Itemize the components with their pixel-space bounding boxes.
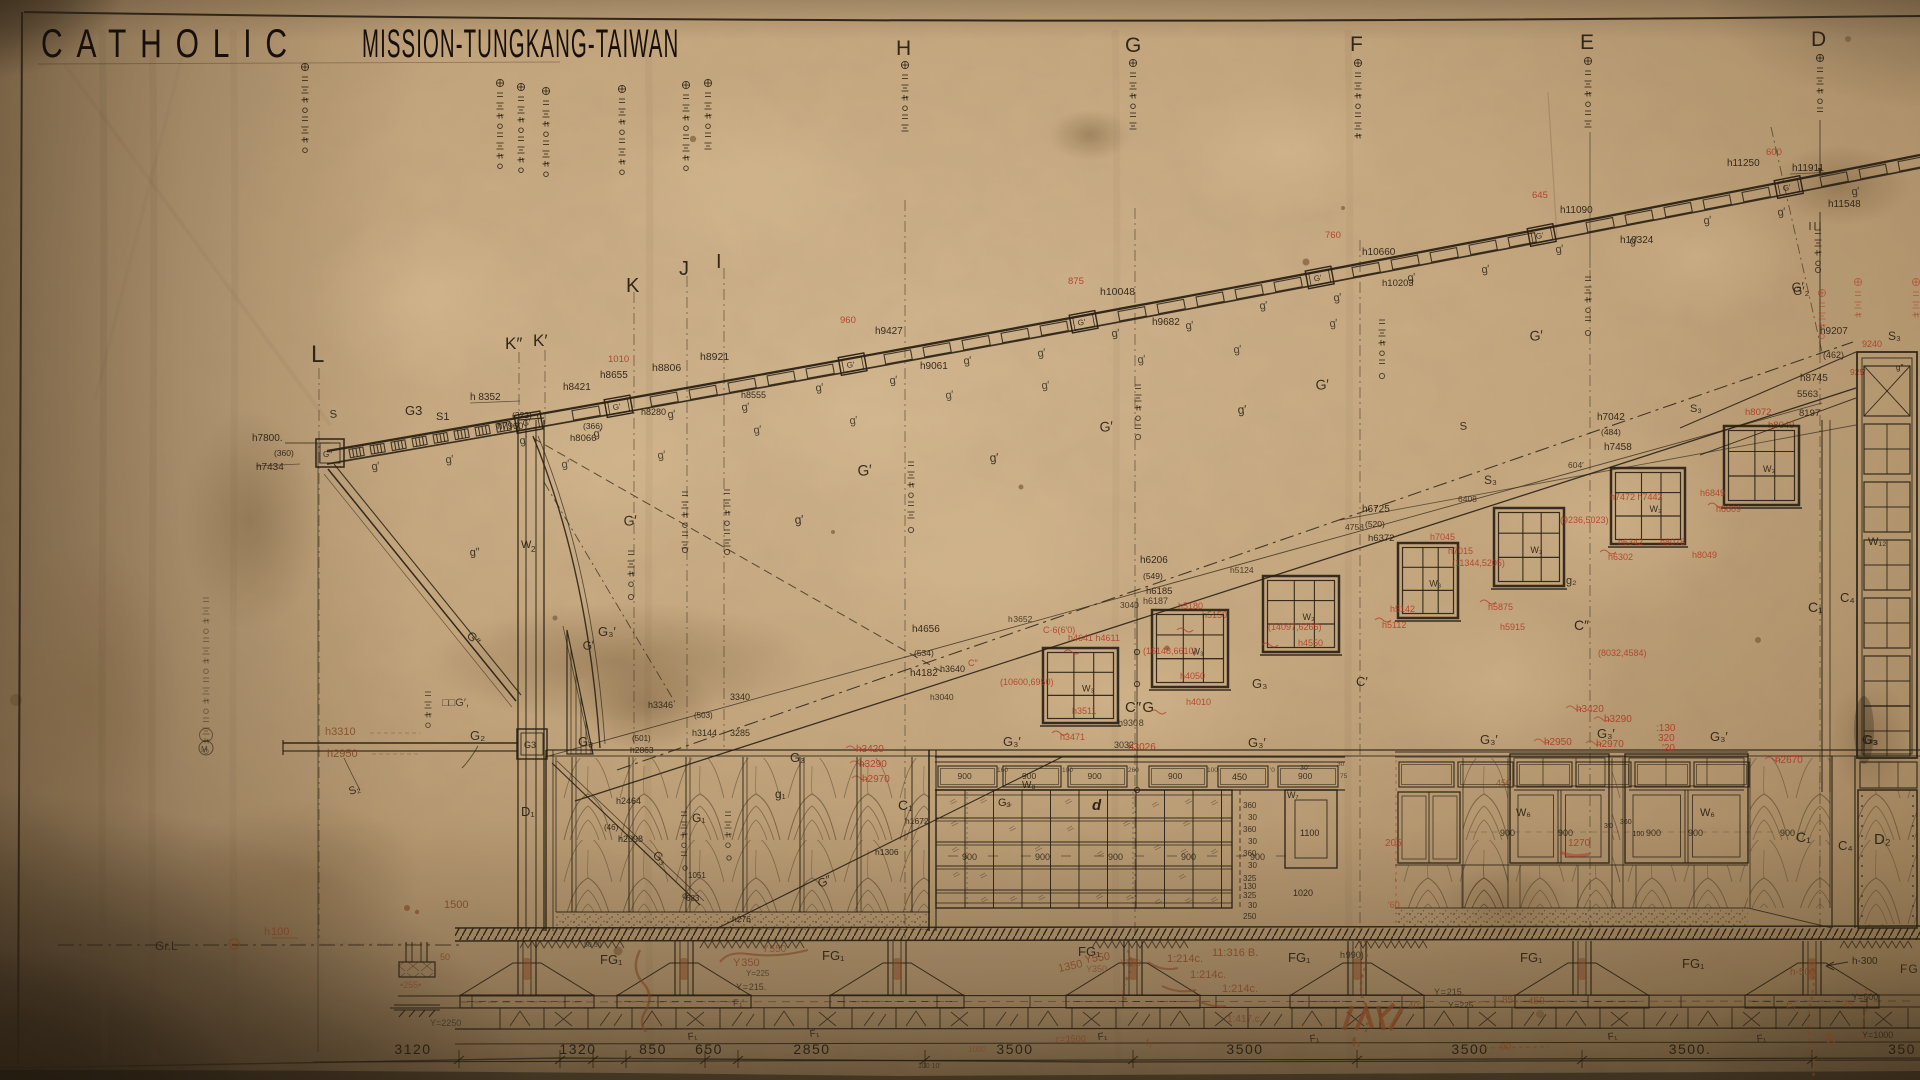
svg-text:G′: G′: [857, 462, 873, 480]
svg-text:h7045: h7045: [1430, 532, 1455, 542]
svg-text:g′: g′: [753, 424, 763, 437]
svg-text:11:316 B.: 11:316 B.: [1212, 947, 1258, 959]
svg-text:′60: ′60: [1388, 900, 1400, 910]
svg-text:3500.: 3500.: [1669, 1041, 1712, 1057]
svg-text:C′′: C′′: [968, 658, 978, 668]
svg-text:875: 875: [1068, 276, 1084, 287]
svg-text:Y=1000: Y=1000: [1862, 1030, 1893, 1040]
svg-text:C″: C″: [1574, 617, 1589, 633]
svg-text:645: 645: [1532, 190, 1548, 201]
svg-text:h6372: h6372: [1368, 533, 1394, 544]
svg-text:h8806: h8806: [652, 362, 681, 374]
svg-text:g′: g′: [741, 401, 751, 414]
svg-text:h930 8: h930 8: [1118, 718, 1144, 728]
svg-text:h3511: h3511: [1072, 706, 1096, 716]
svg-text:g′: g′: [1333, 292, 1343, 305]
svg-text:50 50: 50 50: [584, 942, 602, 949]
svg-text:g′: g′: [519, 434, 529, 447]
svg-text:160: 160: [997, 767, 1008, 774]
svg-text:E: E: [1580, 31, 1594, 54]
svg-text:S₃: S₃: [1690, 403, 1702, 415]
svg-text:g″: g″: [1896, 363, 1903, 372]
svg-text:900: 900: [962, 852, 977, 862]
svg-text:(534): (534): [914, 648, 934, 658]
svg-text:900: 900: [1646, 828, 1661, 838]
svg-text:g′: g′: [667, 408, 677, 421]
svg-text:G′: G′: [1315, 376, 1330, 393]
svg-text:h4010: h4010: [1186, 697, 1211, 707]
svg-text:h7042: h7042: [1597, 412, 1625, 423]
svg-text:D₁: D₁: [521, 804, 535, 819]
svg-text:1010: 1010: [608, 354, 629, 365]
svg-text:g′: g′: [849, 414, 859, 427]
svg-text:g′: g′: [815, 382, 825, 395]
svg-text:(462): (462): [1823, 350, 1844, 360]
svg-text:75: 75: [1843, 999, 1853, 1009]
svg-text:h8421: h8421: [563, 382, 591, 393]
svg-text:M: M: [201, 745, 208, 754]
svg-text:(501): (501): [632, 734, 651, 743]
svg-text:900: 900: [1088, 771, 1102, 781]
svg-text:G₃: G₃: [1864, 733, 1878, 747]
svg-text:g₁: g₁: [775, 787, 786, 801]
svg-text:g′: g′: [1703, 214, 1713, 227]
svg-text:350: 350: [1888, 1041, 1916, 1057]
svg-text:(9236,5023): (9236,5023): [1560, 515, 1609, 525]
svg-text:(549): (549): [1143, 571, 1163, 581]
svg-text:C₄: C₄: [1840, 590, 1855, 605]
svg-text:g′: g′: [1137, 353, 1147, 366]
svg-text:900: 900: [1181, 852, 1196, 862]
svg-text:Y =225: Y =225: [1448, 1000, 1474, 1010]
svg-text:(8032,4584): (8032,4584): [1598, 648, 1647, 658]
svg-text:FG₁: FG₁: [600, 952, 623, 967]
svg-text:100 10′: 100 10′: [918, 1063, 941, 1070]
svg-text:30: 30: [1248, 901, 1257, 910]
svg-text:5563: 5563: [1797, 389, 1818, 400]
svg-text:h3144: h3144: [692, 728, 717, 738]
svg-text:CATHOLIC: CATHOLIC: [41, 22, 303, 66]
svg-text:100: 100: [1062, 767, 1073, 774]
svg-text:1:214c.: 1:214c.: [1190, 969, 1226, 981]
svg-text:FG₁: FG₁: [822, 948, 845, 963]
svg-text:h11548: h11548: [1828, 199, 1861, 210]
svg-text:h3040: h3040: [930, 692, 954, 702]
svg-text:g′: g′: [1481, 263, 1491, 276]
svg-text:g′: g′: [561, 458, 571, 471]
svg-text:W₃: W₃: [1763, 464, 1775, 474]
svg-text:g″: g″: [469, 546, 480, 559]
svg-text:h9061: h9061: [920, 361, 948, 372]
svg-text:h3310: h3310: [325, 726, 356, 738]
svg-text:Y=2250: Y=2250: [430, 1018, 461, 1028]
svg-text:h2863: h2863: [630, 745, 654, 755]
svg-text:G₃: G₃: [578, 734, 593, 749]
svg-text:F₁: F₁: [1756, 1033, 1767, 1045]
svg-text:g′: g′: [1629, 235, 1639, 248]
svg-text:W₆: W₆: [1700, 807, 1715, 819]
svg-text:Y550: Y550: [1120, 958, 1141, 968]
svg-text:h4641 h4611: h4641 h4611: [1068, 633, 1120, 643]
svg-text:FG₁: FG₁: [1288, 950, 1311, 965]
svg-text:G₃′: G₃′: [1710, 729, 1728, 744]
svg-text:360: 360: [1243, 825, 1257, 834]
svg-text:F₁: F₁: [1607, 1031, 1618, 1043]
svg-text:h10660: h10660: [1362, 247, 1396, 258]
svg-text:h 100: h 100: [264, 926, 289, 938]
svg-text:r = 1500: r = 1500: [1056, 1034, 1086, 1044]
svg-text:h 8352: h 8352: [470, 392, 501, 403]
svg-text:h8072: h8072: [1745, 407, 1771, 418]
svg-text:h2464: h2464: [616, 796, 641, 806]
svg-text:900: 900: [1035, 852, 1050, 862]
svg-text:g′: g′: [889, 374, 899, 387]
svg-text:6408: 6408: [1458, 494, 1477, 504]
svg-text:G₃′: G₃′: [598, 624, 616, 639]
svg-text:C₁: C₁: [1808, 599, 1823, 615]
svg-text:FG₁: FG₁: [1682, 956, 1705, 971]
svg-text:C₁: C₁: [1796, 829, 1811, 845]
svg-text:325: 325: [1243, 891, 1257, 900]
svg-text:□: □: [390, 704, 396, 715]
svg-text:G′₂: G′₂: [1793, 284, 1810, 298]
svg-text:(360): (360): [274, 448, 294, 458]
svg-text:900: 900: [1688, 828, 1703, 838]
svg-text:D: D: [1811, 28, 1826, 51]
svg-text:I: I: [716, 251, 722, 273]
svg-text:K′: K′: [533, 331, 548, 350]
svg-text:3500: 3500: [1451, 1041, 1488, 1057]
svg-text:1320: 1320: [559, 1041, 596, 1057]
svg-text:W₃: W₃: [1429, 579, 1441, 589]
svg-text:900: 900: [1298, 771, 1312, 781]
svg-text:h3026: h3026: [1128, 742, 1156, 753]
svg-text:F₁: F₁: [809, 1028, 820, 1040]
svg-text:760: 760: [1325, 230, 1341, 241]
svg-text:130: 130: [1243, 882, 1257, 891]
svg-text:G​3: G​3: [405, 403, 422, 418]
svg-text:h7960: h7960: [497, 421, 523, 432]
svg-text:8197: 8197: [1799, 408, 1820, 419]
svg-text:G′: G′: [1529, 327, 1544, 344]
svg-text:3340: 3340: [730, 692, 750, 702]
svg-text:g′: g′: [1037, 347, 1047, 360]
svg-text:g′: g′: [1851, 185, 1861, 198]
svg-text:L: L: [311, 341, 324, 368]
svg-text:h11090: h11090: [1560, 205, 1593, 216]
svg-text:h4182: h4182: [910, 668, 938, 679]
svg-text:(520): (520): [1365, 519, 1385, 529]
svg-text:g′: g′: [1777, 206, 1787, 219]
svg-text:h6849: h6849: [1700, 488, 1725, 498]
svg-text:3285: 3285: [730, 728, 750, 738]
svg-text:h4656: h4656: [912, 624, 940, 635]
svg-text:H: H: [896, 37, 911, 60]
svg-text:h-300: h-300: [1852, 956, 1878, 967]
svg-text:(484): (484): [1601, 427, 1621, 437]
svg-text:40′: 40′: [1408, 1001, 1421, 1012]
svg-text:650: 650: [695, 1041, 723, 1057]
svg-text:h2098: h2098: [618, 834, 643, 844]
svg-text:Gr.L: Gr.L: [155, 939, 178, 953]
svg-text:F₂: F₂: [1786, 1002, 1796, 1013]
svg-text:G₂: G₂: [470, 728, 485, 743]
svg-text:4758: 4758: [1345, 522, 1364, 532]
svg-text:900: 900: [1108, 852, 1123, 862]
svg-text:G′: G′: [1099, 418, 1114, 435]
svg-text:FG₁: FG₁: [1520, 950, 1543, 965]
svg-text:h8078: h8078: [1660, 537, 1685, 547]
svg-text:•255•: •255•: [400, 980, 421, 990]
svg-text:(503): (503): [694, 711, 713, 720]
svg-text:900: 900: [958, 771, 972, 781]
svg-text:G″: G″: [323, 450, 332, 459]
svg-text:30′: 30′: [1300, 765, 1310, 772]
svg-text:g′: g′: [1041, 379, 1051, 392]
svg-text:g′: g′: [945, 389, 955, 402]
svg-text:Y=900: Y=900: [1852, 992, 1878, 1002]
svg-text:h276: h276: [732, 914, 751, 924]
svg-text:h-500: h-500: [1790, 967, 1816, 978]
svg-text:G₃′: G₃′: [1480, 732, 1498, 747]
svg-text:g′: g′: [1111, 327, 1121, 340]
svg-text:F: F: [1350, 33, 1363, 56]
svg-text:h5915: h5915: [1500, 622, 1525, 632]
svg-text:3040: 3040: [1120, 600, 1139, 610]
svg-text:h1306: h1306: [875, 847, 899, 857]
svg-text:h7800.: h7800.: [252, 433, 283, 444]
svg-text:h8921: h8921: [700, 351, 729, 363]
svg-text:h3346: h3346: [648, 700, 673, 710]
svg-text:F ₁′: F ₁′: [733, 998, 744, 1008]
svg-text:W₁₂: W₁₂: [1868, 536, 1886, 548]
svg-text:□□G′,: □□G′,: [442, 697, 469, 709]
svg-text:K: K: [626, 275, 640, 297]
svg-text:C′: C′: [1356, 674, 1368, 689]
svg-text:Y350: Y350: [1086, 964, 1107, 974]
svg-text:C₄: C₄: [1838, 838, 1853, 853]
svg-text:(14097,6265): (14097,6265): [1268, 622, 1322, 632]
svg-text:h8280: h8280: [641, 407, 666, 417]
svg-text:(11344,5205): (11344,5205): [1452, 558, 1505, 568]
svg-text:900: 900: [1558, 828, 1573, 838]
svg-text:G₁: G₁: [692, 811, 705, 825]
svg-text:360: 360: [1243, 849, 1257, 858]
svg-text:683: 683: [686, 894, 700, 903]
svg-text:h 3652: h 3652: [1008, 614, 1033, 624]
svg-text:h6342: h6342: [1618, 537, 1643, 547]
svg-text:(16148,6610): (16148,6610): [1143, 646, 1197, 656]
svg-text:450: 450: [1232, 772, 1247, 782]
svg-text:MISSION-TUNGKANG-TAIWAN: MISSION-TUNGKANG-TAIWAN: [362, 21, 679, 66]
svg-text:G₃: G₃: [998, 797, 1011, 809]
svg-text:1270: 1270: [1568, 838, 1591, 849]
svg-text:g′: g′: [1233, 343, 1243, 356]
svg-text:g′: g′: [657, 449, 667, 462]
svg-text:600: 600: [1766, 147, 1782, 158]
svg-text:G: G: [1125, 34, 1141, 57]
svg-text:W₆: W₆: [1516, 807, 1531, 819]
svg-text:g′: g′: [593, 427, 603, 440]
svg-text:1:214c.: 1:214c.: [1222, 983, 1258, 995]
svg-text:h11250: h11250: [1727, 158, 1760, 169]
svg-text:h6206: h6206: [1140, 555, 1168, 566]
svg-text:604′: 604′: [1568, 460, 1584, 470]
svg-text:h3290: h3290: [1604, 714, 1632, 725]
svg-text:W₇: W₇: [1287, 790, 1299, 800]
svg-text:Y = 215.: Y = 215.: [736, 982, 766, 992]
svg-text:1:417.c.: 1:417.c.: [1227, 1014, 1263, 1025]
svg-text:G₃′: G₃′: [1003, 734, 1021, 749]
svg-text:h7458: h7458: [1604, 442, 1632, 453]
svg-text:1000: 1000: [968, 1045, 986, 1054]
svg-text:30: 30: [1248, 837, 1257, 846]
svg-text:h1672: h1672: [905, 816, 929, 826]
svg-text:d: d: [1092, 797, 1102, 814]
svg-text:f₁: f₁: [1352, 1035, 1361, 1049]
svg-text:C″ G: C″ G: [1125, 699, 1154, 716]
svg-text:D₂: D₂: [1874, 831, 1891, 848]
svg-text:2: 2: [531, 545, 536, 554]
svg-text:W₃: W₃: [1649, 504, 1661, 514]
svg-text:h8555: h8555: [741, 390, 766, 400]
svg-text:(46): (46): [604, 823, 619, 832]
svg-text:960: 960: [840, 315, 856, 326]
svg-text:h9427: h9427: [875, 326, 903, 337]
svg-text:h4050: h4050: [1180, 671, 1205, 681]
svg-text:g₂: g₂: [1566, 575, 1576, 587]
svg-text:Y=225: Y=225: [746, 969, 770, 978]
svg-text:G3: G3: [524, 740, 536, 750]
svg-text:′0: ′0: [1270, 767, 1275, 774]
svg-text:G₃′: G₃′: [1248, 735, 1266, 750]
svg-text:F G: F G: [1900, 962, 1918, 976]
svg-text:G′: G′: [623, 512, 638, 529]
svg-text:50: 50: [440, 952, 450, 962]
svg-text:W₃: W₃: [1082, 684, 1094, 694]
svg-text:3500: 3500: [996, 1041, 1033, 1057]
svg-text:3500: 3500: [1226, 1041, 1263, 1057]
svg-text:f₁: f₁: [1146, 1038, 1153, 1049]
svg-text:205: 205: [1385, 838, 1402, 849]
svg-text:W₃: W₃: [1303, 612, 1315, 622]
svg-text:K″: K″: [505, 334, 522, 353]
svg-text:h7015: h7015: [1448, 546, 1473, 556]
svg-text:30: 30: [1337, 761, 1345, 768]
svg-text:g′: g′: [1185, 319, 1195, 332]
svg-text:1051: 1051: [688, 871, 706, 880]
svg-text:3120: 3120: [394, 1041, 431, 1057]
svg-text:g′: g′: [371, 460, 381, 473]
svg-text:9240: 9240: [1862, 339, 1882, 349]
svg-text:g′: g′: [1329, 317, 1339, 330]
svg-text:1100: 1100: [1300, 828, 1319, 838]
svg-text:100: 100: [1207, 767, 1218, 774]
svg-text:h7434: h7434: [256, 462, 284, 473]
svg-text:g′: g′: [1259, 300, 1269, 313]
svg-text:h7472 h7442: h7472 h7442: [1610, 492, 1663, 502]
svg-text:1020: 1020: [1293, 888, 1313, 898]
svg-text:h6187: h6187: [1143, 596, 1168, 606]
svg-text:h9682: h9682: [1152, 317, 1180, 328]
svg-text:F₁: F₁: [1097, 1031, 1108, 1043]
svg-text:1:214c.: 1:214c.: [1167, 953, 1203, 965]
svg-text:Y 350: Y 350: [733, 957, 760, 969]
svg-text:S: S: [329, 408, 337, 421]
svg-text:J: J: [679, 258, 689, 280]
svg-text:2850: 2850: [793, 1041, 830, 1057]
svg-text:(322): (322): [512, 410, 532, 420]
svg-text:75: 75: [1340, 773, 1348, 780]
svg-text:h5875: h5875: [1488, 602, 1513, 612]
svg-text:G₃: G₃: [1252, 676, 1267, 691]
svg-text:100: 100: [1632, 831, 1644, 838]
svg-text:h5142: h5142: [1390, 604, 1415, 614]
svg-text:W₃: W₃: [1530, 545, 1542, 555]
svg-text:(10600,6950): (10600,6950): [1000, 677, 1054, 687]
svg-text:h3640: h3640: [940, 664, 965, 674]
svg-text:F₁: F₁: [1309, 1033, 1320, 1045]
svg-text:h3471: h3471: [1060, 732, 1085, 742]
svg-text:250: 250: [1243, 912, 1257, 921]
svg-text:g′: g′: [963, 355, 973, 368]
svg-text:S₃: S₃: [1888, 329, 1901, 343]
svg-text:h2950: h2950: [327, 748, 358, 760]
svg-text:450: 450: [1496, 778, 1511, 788]
svg-text:900: 900: [1168, 771, 1182, 781]
svg-text:Y 550: Y 550: [762, 944, 787, 955]
svg-text:360: 360: [1243, 801, 1257, 810]
svg-text:h8066: h8066: [570, 433, 596, 444]
svg-text:f₁: f₁: [1826, 1030, 1837, 1046]
svg-text:850: 850: [639, 1041, 667, 1057]
svg-text:30: 30: [1248, 861, 1257, 870]
svg-text:h8745: h8745: [1800, 373, 1828, 384]
svg-text:h10048: h10048: [1100, 286, 1135, 298]
svg-text:260: 260: [1128, 767, 1139, 774]
svg-text:Y = 215.: Y = 215.: [1434, 987, 1464, 997]
svg-text:S1: S1: [436, 411, 449, 423]
svg-text:h8049: h8049: [1692, 550, 1717, 560]
svg-text:S: S: [1459, 420, 1467, 433]
svg-text:h 990): h 990): [1340, 950, 1364, 960]
svg-text:S₃: S₃: [1484, 473, 1497, 487]
svg-text:g′: g′: [445, 453, 455, 466]
svg-text:h6809: h6809: [1716, 504, 1741, 514]
svg-text:g′: g′: [1407, 271, 1417, 284]
svg-text:85: 85: [1502, 995, 1514, 1006]
svg-text:1500: 1500: [444, 899, 468, 911]
svg-text:h5124: h5124: [1230, 565, 1254, 575]
svg-text:h8655: h8655: [600, 370, 628, 381]
svg-text:g′: g′: [1555, 243, 1565, 256]
svg-text:30: 30: [1248, 813, 1257, 822]
svg-text:h4550: h4550: [1298, 638, 1323, 648]
svg-text:h6302: h6302: [1608, 552, 1633, 562]
